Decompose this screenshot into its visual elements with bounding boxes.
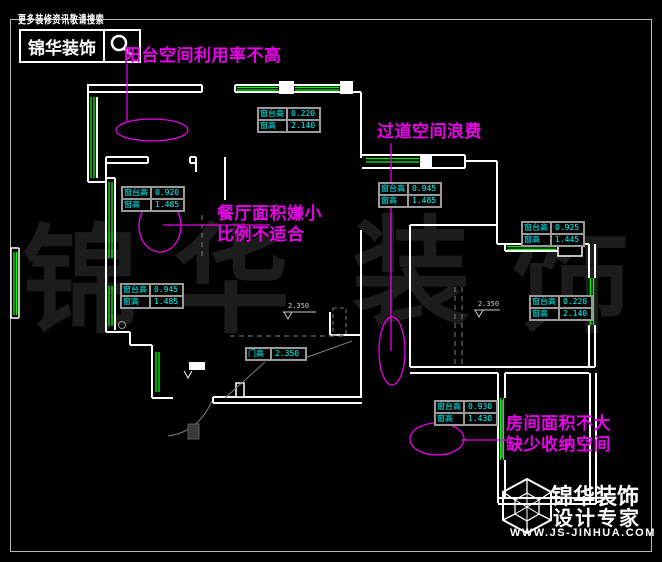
table-value: 1.430 [464, 413, 497, 425]
table-value: 1.485 [151, 199, 184, 211]
table-value: 2.350 [271, 348, 306, 360]
annotation-room-line1: 房间面积不大 [506, 413, 611, 434]
corridor-highlight-ellipse [379, 317, 405, 385]
elevation-value: 2.350 [288, 302, 309, 310]
entry-level-flag [189, 362, 205, 370]
table-value: 1.485 [150, 296, 183, 308]
balcony-highlight-ellipse [116, 119, 188, 141]
table-label: 窗高 [530, 308, 559, 320]
annotation-dining: 餐厅面积嫌小 比例不适合 [217, 203, 322, 245]
entry-door-leaf [188, 424, 199, 439]
table-value: 0.220 [287, 108, 320, 120]
table-label: 窗台高 [379, 183, 408, 195]
window-table: 窗台高 0.920 窗高 1.485 [121, 186, 185, 212]
table-label: 窗台高 [121, 284, 150, 296]
table-label: 窗台高 [522, 222, 551, 234]
floorplan-drawing [0, 0, 662, 562]
room-highlight-ellipse [410, 423, 464, 455]
table-label: 窗高 [435, 413, 464, 425]
header-logo-text: 锦华装饰 [21, 34, 103, 59]
door-height-table: 门高 2.350 [245, 347, 307, 361]
window-table: 窗台高 0.220 窗高 2.140 [257, 107, 321, 133]
table-value: 0.925 [551, 222, 584, 234]
annotation-dining-line2: 比例不适合 [217, 224, 322, 245]
window-table: 窗台高 0.930 窗高 1.430 [434, 400, 498, 426]
table-label: 窗台高 [122, 187, 151, 199]
table-label: 窗高 [258, 120, 287, 132]
window-table: 窗台高 0.945 窗高 1.485 [378, 182, 442, 208]
table-value: 2.140 [287, 120, 320, 132]
annotation-room-line2: 缺少收纳空间 [506, 434, 611, 455]
table-value: 0.945 [408, 183, 441, 195]
window-table: 窗台高 0.945 窗高 1.485 [120, 283, 184, 309]
table-value: 0.220 [559, 296, 592, 308]
window-table: 窗台高 0.925 窗高 1.445 [521, 221, 585, 247]
table-value: 2.140 [559, 308, 592, 320]
table-label: 窗高 [379, 195, 408, 207]
annotation-corridor: 过道空间浪费 [377, 121, 482, 142]
table-label: 窗台高 [435, 401, 464, 413]
table-value: 0.920 [151, 187, 184, 199]
table-value: 1.445 [551, 234, 584, 246]
annotation-dining-line1: 餐厅面积嫌小 [217, 203, 322, 224]
table-value: 0.945 [150, 284, 183, 296]
annotation-room: 房间面积不大 缺少收纳空间 [506, 413, 611, 455]
table-label: 窗高 [121, 296, 150, 308]
footer-website-url: WWW.JS-JINHUA.COM [510, 527, 656, 539]
table-label: 窗高 [522, 234, 551, 246]
table-label: 门高 [246, 348, 271, 360]
annotation-balcony: 阳台空间利用率不高 [124, 45, 282, 66]
table-value: 1.485 [408, 195, 441, 207]
window-table: 窗台高 0.220 窗高 2.140 [529, 295, 593, 321]
window-lines [14, 88, 594, 461]
search-hint-text: 更多装修资讯敬请搜索 [18, 11, 104, 27]
table-value: 0.930 [464, 401, 497, 413]
cad-floorplan-image: 锦 华 装 饰 [0, 0, 662, 562]
table-label: 窗高 [122, 199, 151, 211]
elevation-value: 2.350 [478, 300, 499, 308]
table-label: 窗台高 [530, 296, 559, 308]
header-logo: 锦华装饰 [19, 29, 141, 63]
table-label: 窗台高 [258, 108, 287, 120]
